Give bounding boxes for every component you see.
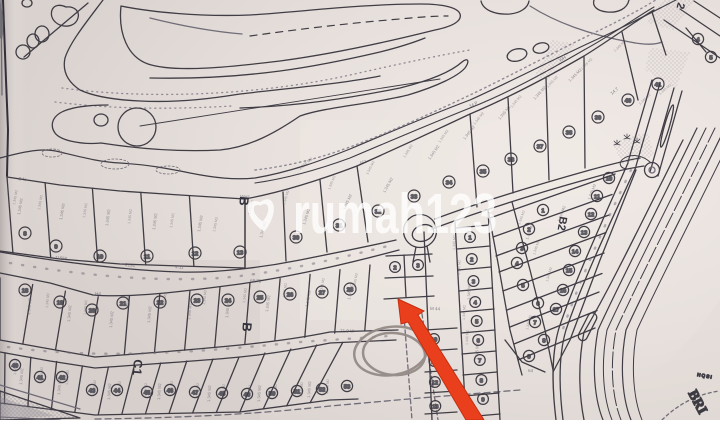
svg-text:1.345 M2: 1.345 M2: [466, 282, 472, 300]
svg-text:7: 7: [533, 320, 536, 326]
svg-text:C1: C1: [130, 359, 145, 376]
svg-text:12: 12: [588, 212, 594, 218]
svg-text:68.78: 68.78: [250, 278, 262, 284]
svg-text:35: 35: [480, 169, 487, 175]
svg-text:C N: C N: [18, 176, 26, 182]
svg-text:25: 25: [257, 295, 264, 301]
svg-text:B: B: [239, 322, 255, 333]
svg-text:14: 14: [572, 249, 579, 255]
svg-text:40: 40: [625, 98, 631, 104]
svg-text:37: 37: [537, 144, 543, 150]
svg-text:12: 12: [192, 251, 198, 257]
svg-text:2: 2: [393, 265, 396, 271]
svg-text:13: 13: [432, 404, 439, 410]
svg-text:15: 15: [566, 268, 573, 274]
svg-text:2: 2: [470, 257, 473, 263]
svg-text:1.345 M2: 1.345 M2: [474, 342, 480, 360]
svg-text:M 44: M 44: [430, 306, 441, 311]
svg-text:1.345 M2: 1.345 M2: [462, 305, 467, 320]
svg-text:16: 16: [560, 288, 567, 294]
svg-text:21.9 W: 21.9 W: [340, 328, 355, 334]
svg-text:53: 53: [344, 384, 351, 390]
svg-text:64: 64: [528, 368, 534, 373]
svg-text:38: 38: [566, 130, 573, 136]
svg-text:11: 11: [594, 194, 601, 200]
svg-text:12: 12: [432, 380, 438, 386]
svg-text:10: 10: [606, 176, 612, 182]
svg-text:13: 13: [237, 250, 244, 256]
svg-text:19: 19: [57, 300, 64, 306]
svg-text:20: 20: [89, 308, 95, 314]
svg-text:26: 26: [287, 292, 294, 298]
svg-text:1.345 M2: 1.345 M2: [465, 330, 470, 345]
svg-text:23: 23: [194, 298, 201, 304]
svg-text:1.345 M2: 1.345 M2: [457, 260, 462, 275]
svg-text:13: 13: [581, 230, 588, 236]
svg-text:11: 11: [144, 254, 151, 260]
svg-text:17: 17: [553, 307, 559, 313]
svg-text:4.11: 4.11: [175, 264, 184, 270]
svg-text:39: 39: [595, 115, 602, 121]
svg-text:36: 36: [508, 157, 515, 163]
svg-text:H4: H4: [95, 291, 102, 296]
svg-text:18: 18: [22, 288, 29, 294]
svg-text:10: 10: [97, 254, 103, 260]
svg-text:rumah123: rumah123: [293, 182, 497, 246]
svg-text:B2: B2: [555, 215, 569, 231]
